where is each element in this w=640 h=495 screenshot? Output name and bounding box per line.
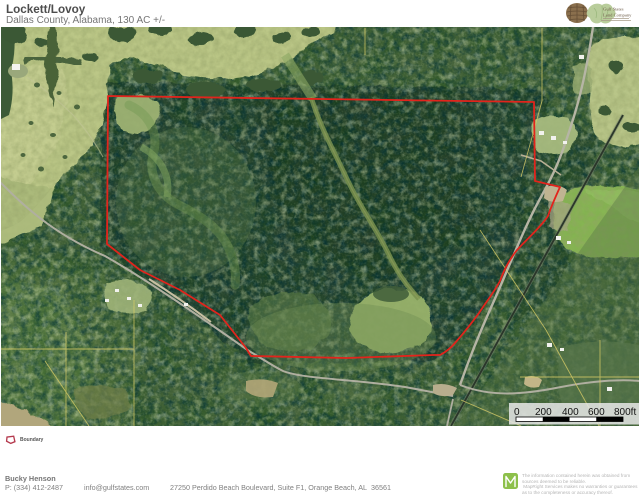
svg-text:0: 0 (514, 407, 520, 418)
svg-text:Land Company: Land Company (603, 13, 632, 18)
svg-text:400: 400 (562, 407, 579, 418)
svg-text:Gulf States: Gulf States (603, 7, 624, 12)
svg-text:600: 600 (588, 407, 605, 418)
svg-text:200: 200 (535, 407, 552, 418)
svg-text:800ft: 800ft (614, 407, 636, 418)
